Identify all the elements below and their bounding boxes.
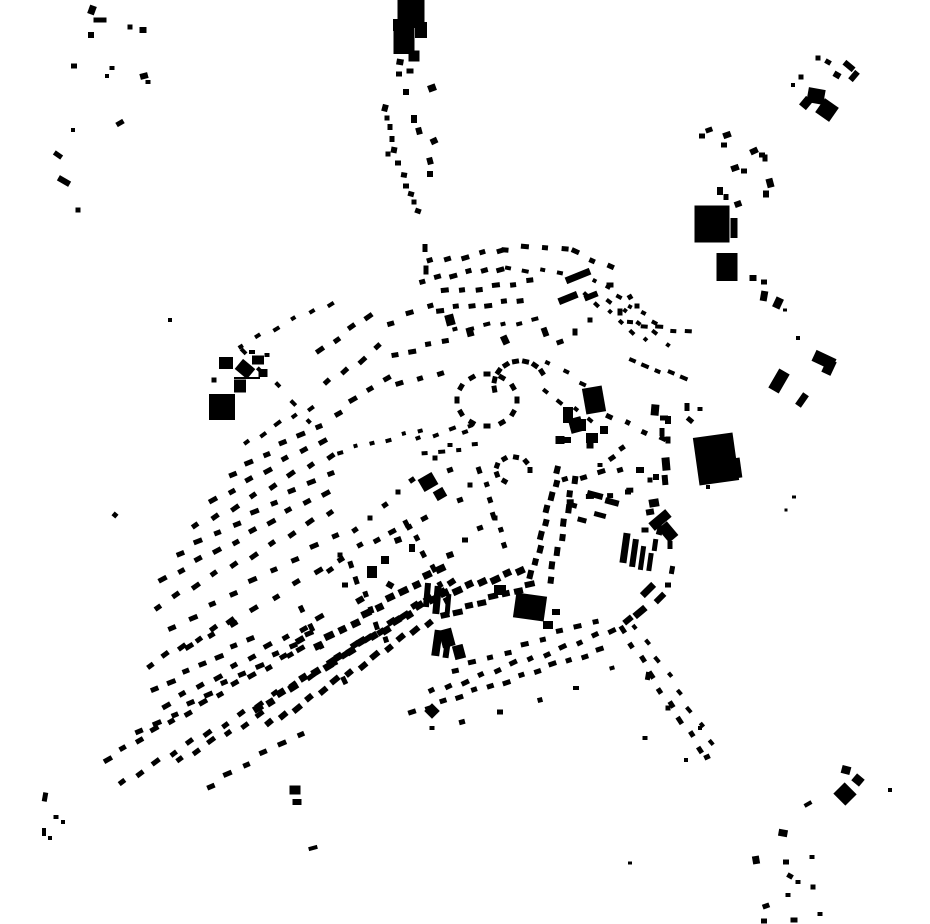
building bbox=[491, 385, 497, 393]
building bbox=[628, 357, 636, 363]
building bbox=[433, 456, 438, 461]
building bbox=[494, 471, 501, 478]
building bbox=[105, 74, 109, 78]
building bbox=[619, 625, 628, 634]
building bbox=[543, 621, 553, 629]
building bbox=[799, 75, 804, 80]
building bbox=[475, 287, 483, 293]
building bbox=[366, 385, 375, 393]
building bbox=[308, 845, 318, 851]
building bbox=[244, 459, 254, 467]
building bbox=[468, 374, 477, 382]
building bbox=[209, 569, 218, 577]
building bbox=[631, 624, 637, 630]
building bbox=[484, 372, 491, 377]
building bbox=[357, 356, 367, 366]
building bbox=[279, 652, 288, 660]
building bbox=[541, 327, 550, 338]
building bbox=[409, 544, 415, 552]
building bbox=[588, 318, 593, 323]
building bbox=[502, 568, 512, 578]
building bbox=[652, 539, 659, 552]
building bbox=[293, 799, 302, 805]
building bbox=[557, 270, 564, 275]
building bbox=[609, 665, 615, 670]
building bbox=[706, 485, 710, 489]
building bbox=[457, 409, 465, 418]
building bbox=[385, 438, 392, 443]
building bbox=[411, 115, 417, 123]
building bbox=[340, 366, 349, 375]
building bbox=[552, 609, 560, 615]
building bbox=[498, 527, 504, 533]
building bbox=[236, 709, 245, 718]
building bbox=[486, 683, 494, 690]
building bbox=[234, 377, 260, 379]
building bbox=[242, 761, 250, 768]
building bbox=[212, 546, 222, 555]
building bbox=[484, 481, 490, 487]
building bbox=[762, 902, 770, 909]
building bbox=[587, 442, 594, 449]
building bbox=[453, 303, 460, 309]
building bbox=[448, 425, 456, 431]
building bbox=[229, 590, 238, 598]
building bbox=[477, 599, 487, 607]
building bbox=[384, 643, 394, 653]
building bbox=[110, 66, 115, 70]
building bbox=[487, 496, 494, 503]
building bbox=[509, 659, 518, 667]
building bbox=[307, 623, 315, 632]
building bbox=[287, 530, 296, 539]
building bbox=[476, 525, 483, 532]
building bbox=[513, 592, 547, 621]
building bbox=[627, 320, 633, 324]
building bbox=[405, 309, 414, 316]
building bbox=[230, 662, 239, 670]
building bbox=[274, 381, 281, 388]
building bbox=[212, 378, 217, 383]
building bbox=[263, 641, 273, 650]
building bbox=[381, 104, 389, 112]
building bbox=[134, 728, 143, 736]
building bbox=[426, 157, 434, 165]
building bbox=[383, 636, 390, 643]
building bbox=[446, 467, 453, 474]
building bbox=[146, 80, 151, 84]
building bbox=[741, 169, 747, 174]
building bbox=[556, 338, 564, 345]
building bbox=[795, 392, 809, 407]
building bbox=[440, 611, 450, 619]
building bbox=[699, 134, 705, 139]
building bbox=[209, 394, 235, 420]
building bbox=[411, 580, 421, 590]
building bbox=[655, 324, 663, 329]
building bbox=[643, 736, 648, 740]
building bbox=[306, 478, 316, 486]
building bbox=[403, 89, 409, 95]
building bbox=[648, 498, 659, 508]
building bbox=[203, 691, 213, 699]
building bbox=[327, 470, 335, 477]
building bbox=[696, 746, 704, 755]
building bbox=[452, 644, 466, 660]
building bbox=[669, 566, 675, 575]
building bbox=[388, 528, 397, 536]
building bbox=[543, 651, 551, 659]
building bbox=[468, 483, 473, 488]
building bbox=[118, 744, 127, 752]
building bbox=[796, 336, 800, 340]
building bbox=[526, 655, 534, 662]
building bbox=[598, 463, 603, 467]
building bbox=[287, 681, 299, 692]
building bbox=[675, 716, 684, 725]
building bbox=[412, 200, 417, 205]
building bbox=[555, 628, 563, 634]
building bbox=[495, 367, 503, 376]
building bbox=[430, 137, 439, 145]
building bbox=[455, 694, 464, 701]
building bbox=[418, 472, 439, 492]
building bbox=[369, 650, 381, 661]
building bbox=[521, 244, 529, 250]
building bbox=[618, 444, 626, 452]
building bbox=[350, 618, 361, 628]
building bbox=[191, 581, 201, 590]
building bbox=[115, 119, 124, 127]
building bbox=[278, 710, 289, 720]
building bbox=[792, 496, 796, 499]
building bbox=[734, 200, 743, 208]
building bbox=[573, 623, 582, 630]
building bbox=[501, 478, 509, 485]
building bbox=[505, 265, 512, 270]
building bbox=[425, 341, 432, 347]
building bbox=[624, 419, 631, 426]
building bbox=[206, 783, 215, 791]
building bbox=[284, 506, 293, 514]
building bbox=[818, 912, 823, 916]
building bbox=[433, 487, 448, 501]
building bbox=[567, 499, 574, 504]
building bbox=[373, 342, 382, 350]
building bbox=[286, 469, 296, 478]
building bbox=[640, 310, 646, 316]
building bbox=[196, 682, 205, 690]
building bbox=[531, 316, 539, 322]
building bbox=[228, 471, 237, 479]
building bbox=[209, 624, 218, 633]
building bbox=[556, 398, 564, 406]
building bbox=[791, 918, 798, 923]
building bbox=[244, 475, 253, 483]
map-viewport bbox=[0, 0, 930, 924]
building bbox=[686, 416, 695, 424]
building bbox=[515, 397, 520, 404]
building bbox=[368, 516, 373, 521]
building bbox=[561, 246, 568, 252]
building bbox=[461, 254, 470, 261]
building bbox=[401, 172, 408, 178]
building-footprint-map bbox=[0, 0, 930, 924]
building bbox=[268, 539, 277, 547]
building bbox=[526, 569, 534, 579]
building bbox=[643, 336, 649, 342]
building bbox=[407, 191, 414, 197]
building bbox=[48, 836, 52, 840]
building bbox=[456, 448, 461, 452]
building bbox=[477, 671, 485, 678]
building bbox=[297, 731, 305, 738]
building bbox=[752, 855, 760, 864]
building bbox=[786, 893, 791, 897]
building bbox=[642, 528, 649, 533]
building bbox=[444, 314, 456, 327]
building bbox=[419, 550, 427, 559]
building bbox=[791, 83, 795, 87]
building bbox=[760, 290, 769, 301]
building bbox=[432, 432, 439, 438]
building bbox=[305, 418, 311, 424]
building bbox=[168, 318, 172, 322]
building bbox=[509, 383, 517, 392]
building bbox=[605, 413, 613, 421]
building bbox=[615, 294, 622, 300]
building bbox=[386, 152, 391, 157]
building bbox=[57, 175, 71, 187]
building bbox=[579, 381, 587, 388]
building bbox=[491, 376, 497, 384]
building bbox=[553, 465, 561, 474]
building bbox=[464, 602, 473, 610]
building bbox=[193, 555, 202, 563]
building bbox=[385, 116, 390, 121]
building bbox=[502, 361, 511, 369]
building bbox=[331, 532, 339, 539]
building bbox=[313, 566, 323, 575]
building bbox=[42, 792, 48, 802]
building bbox=[391, 352, 399, 358]
building bbox=[272, 325, 280, 332]
building bbox=[195, 635, 204, 643]
building bbox=[510, 282, 517, 288]
building bbox=[247, 671, 257, 680]
building bbox=[240, 721, 249, 730]
building bbox=[146, 662, 155, 670]
building bbox=[167, 717, 176, 725]
building bbox=[421, 451, 427, 455]
building bbox=[263, 451, 271, 458]
building bbox=[416, 375, 423, 382]
building bbox=[641, 324, 648, 328]
building bbox=[573, 686, 579, 690]
building bbox=[605, 298, 612, 305]
building bbox=[635, 320, 641, 326]
building bbox=[249, 508, 259, 516]
building bbox=[537, 530, 545, 540]
building bbox=[255, 662, 265, 670]
building bbox=[176, 550, 185, 558]
building bbox=[265, 353, 270, 357]
building bbox=[42, 828, 46, 836]
building bbox=[703, 753, 711, 760]
building bbox=[668, 541, 673, 549]
building bbox=[501, 298, 508, 304]
building bbox=[646, 508, 655, 515]
building bbox=[321, 489, 331, 498]
building bbox=[219, 357, 233, 369]
building bbox=[394, 28, 415, 54]
building bbox=[578, 419, 586, 431]
building bbox=[394, 536, 403, 544]
building bbox=[600, 426, 608, 434]
building bbox=[571, 247, 580, 255]
building bbox=[592, 278, 597, 283]
building bbox=[249, 491, 258, 499]
building bbox=[271, 650, 279, 657]
building bbox=[640, 582, 656, 598]
building bbox=[591, 631, 599, 639]
building bbox=[573, 329, 578, 336]
building bbox=[563, 407, 573, 423]
building bbox=[396, 490, 401, 495]
building bbox=[833, 782, 856, 805]
building bbox=[667, 369, 675, 375]
building bbox=[594, 511, 607, 519]
building bbox=[487, 592, 498, 600]
building bbox=[468, 326, 475, 331]
building bbox=[772, 296, 784, 309]
building bbox=[258, 748, 267, 756]
building bbox=[275, 687, 286, 698]
building bbox=[373, 621, 380, 630]
building bbox=[409, 625, 421, 636]
building bbox=[420, 514, 429, 522]
building bbox=[464, 579, 474, 589]
building bbox=[436, 308, 445, 314]
building bbox=[347, 560, 354, 568]
building bbox=[351, 526, 359, 534]
building bbox=[493, 667, 501, 675]
building bbox=[408, 349, 417, 355]
building bbox=[646, 553, 653, 572]
building bbox=[381, 501, 389, 509]
building bbox=[308, 308, 315, 315]
building bbox=[326, 566, 335, 574]
building bbox=[327, 301, 335, 308]
building bbox=[676, 689, 683, 696]
building bbox=[232, 520, 241, 528]
building bbox=[216, 691, 225, 699]
building bbox=[424, 266, 429, 275]
building bbox=[547, 576, 554, 584]
building bbox=[76, 208, 81, 213]
building bbox=[289, 399, 297, 407]
building bbox=[661, 457, 670, 471]
building bbox=[627, 294, 634, 301]
building bbox=[208, 496, 218, 505]
building bbox=[532, 558, 540, 566]
building bbox=[651, 329, 658, 336]
building bbox=[484, 424, 491, 429]
building bbox=[246, 635, 255, 643]
building bbox=[451, 586, 463, 597]
building bbox=[178, 690, 187, 698]
building bbox=[407, 69, 414, 74]
building bbox=[210, 512, 219, 521]
building bbox=[565, 657, 572, 664]
building bbox=[446, 578, 456, 587]
building bbox=[103, 755, 113, 764]
building bbox=[395, 632, 406, 642]
building bbox=[305, 517, 315, 526]
building bbox=[228, 488, 237, 496]
building bbox=[467, 659, 476, 666]
building bbox=[455, 397, 460, 404]
building bbox=[252, 356, 264, 365]
building bbox=[193, 537, 203, 545]
building bbox=[214, 653, 224, 661]
building bbox=[167, 624, 176, 632]
building bbox=[638, 546, 646, 570]
building bbox=[573, 406, 579, 412]
building bbox=[592, 619, 599, 625]
building bbox=[543, 504, 551, 513]
building bbox=[537, 697, 543, 703]
building bbox=[667, 672, 673, 678]
building bbox=[401, 431, 406, 436]
building bbox=[423, 244, 428, 252]
building bbox=[298, 605, 306, 613]
building bbox=[616, 467, 623, 474]
building bbox=[479, 249, 486, 256]
building bbox=[292, 578, 301, 586]
building bbox=[342, 583, 348, 588]
building bbox=[415, 435, 421, 441]
building bbox=[177, 567, 186, 575]
building bbox=[636, 467, 644, 473]
building bbox=[586, 417, 593, 424]
building bbox=[607, 627, 616, 635]
building bbox=[390, 136, 395, 142]
building bbox=[353, 443, 358, 448]
building bbox=[654, 592, 667, 605]
building bbox=[685, 403, 690, 411]
building bbox=[504, 650, 512, 656]
building bbox=[71, 64, 77, 69]
building bbox=[516, 321, 523, 326]
building bbox=[417, 428, 423, 433]
building bbox=[763, 155, 768, 162]
building bbox=[396, 72, 402, 77]
building bbox=[480, 267, 488, 274]
building bbox=[811, 885, 816, 890]
building bbox=[554, 547, 561, 557]
building bbox=[373, 537, 382, 545]
building bbox=[665, 416, 671, 424]
building bbox=[483, 321, 491, 327]
building bbox=[439, 697, 447, 704]
building bbox=[465, 268, 472, 274]
building bbox=[249, 350, 255, 354]
building bbox=[222, 770, 232, 778]
building bbox=[796, 880, 801, 884]
building bbox=[556, 436, 565, 444]
building bbox=[53, 150, 63, 159]
